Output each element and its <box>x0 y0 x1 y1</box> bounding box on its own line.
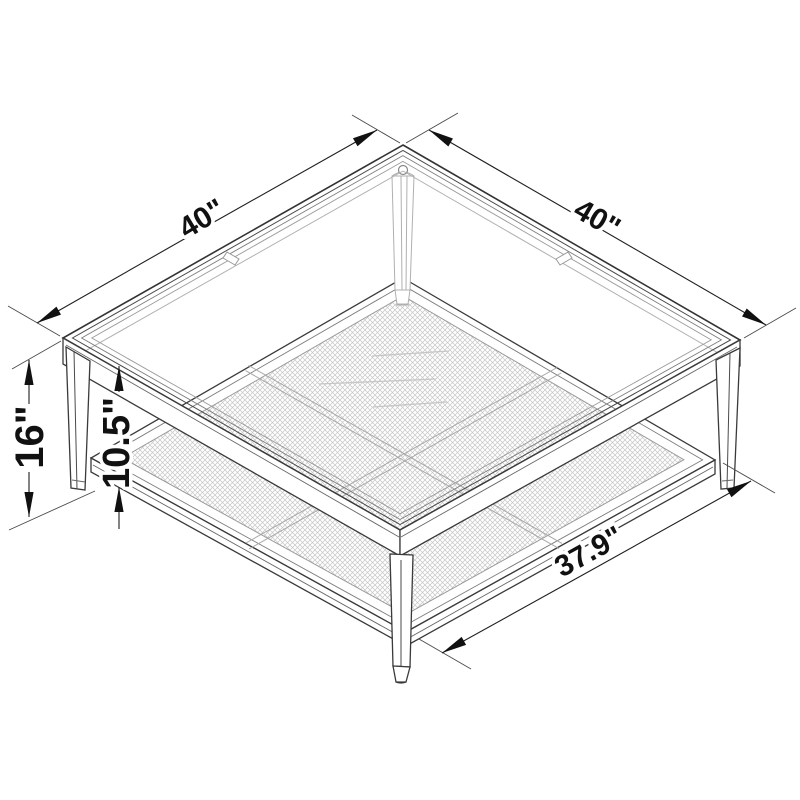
right-leg <box>716 348 740 489</box>
dim-label-top-width-right: 40" <box>568 193 626 245</box>
front-leg <box>390 554 413 683</box>
dim-label-overall-height: 16" <box>8 405 52 468</box>
left-leg <box>66 347 90 490</box>
dim-top-width-left: 40" <box>37 130 377 323</box>
back-leg-foot <box>395 290 410 304</box>
frame-clip-icon <box>556 252 572 265</box>
front-leg-foot <box>393 666 410 682</box>
dim-overall-height: 16" <box>8 360 52 517</box>
dim-top-width-right: 40" <box>429 130 766 325</box>
table-dimension-diagram: 40" 40" 16" 10.5" 37.9" <box>0 0 800 800</box>
dim-label-top-width-left: 40" <box>173 193 231 246</box>
frame-clip-icon <box>223 252 239 265</box>
back-leg-hidden <box>392 166 414 306</box>
dim-label-shelf-clearance: 10.5" <box>96 397 138 489</box>
